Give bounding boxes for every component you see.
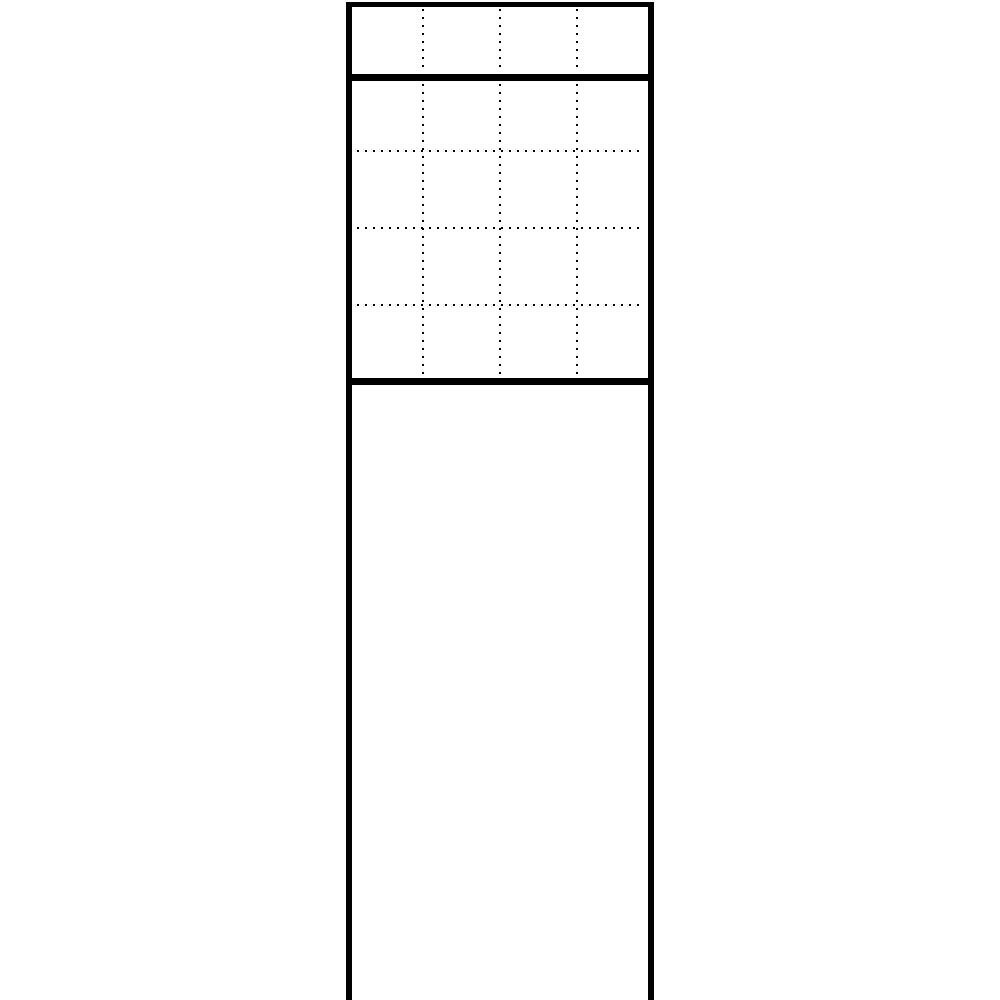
module-divider-dotted-line	[499, 9, 501, 73]
module-divider-dotted-line	[422, 9, 424, 73]
upper-separator-line	[346, 74, 654, 81]
column-right-edge-line	[648, 2, 654, 1000]
grid-row-dotted-line	[357, 227, 644, 229]
drawing-canvas	[0, 0, 1000, 1000]
grid-column-dotted-line	[422, 84, 424, 377]
lower-separator-line	[346, 378, 654, 385]
column-left-edge-line	[346, 2, 352, 1000]
grid-row-dotted-line	[357, 304, 644, 306]
module-divider-dotted-line	[576, 9, 578, 73]
grid-row-dotted-line	[357, 150, 644, 152]
column-top-border-line	[346, 2, 654, 7]
grid-column-dotted-line	[576, 84, 578, 377]
grid-column-dotted-line	[499, 84, 501, 377]
